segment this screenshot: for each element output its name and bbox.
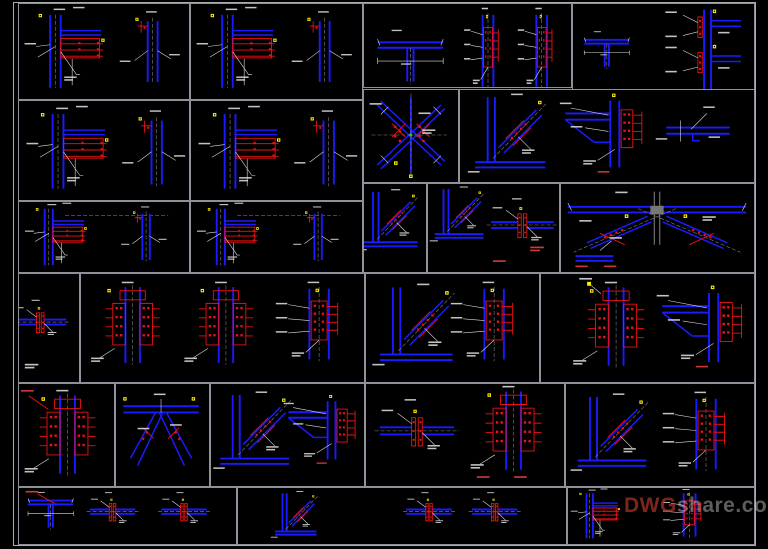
detail-panel-f1 xyxy=(18,487,237,545)
detail-panel-d4 xyxy=(540,273,755,383)
detail-panel-a1 xyxy=(18,3,190,100)
detail-panel-a2 xyxy=(190,3,363,100)
detail-panel-a3 xyxy=(363,3,572,88)
detail-panel-f3 xyxy=(567,487,755,545)
detail-panel-d1 xyxy=(18,273,80,383)
detail-panel-d2 xyxy=(80,273,365,383)
detail-panel-c3 xyxy=(363,183,427,273)
detail-panel-b1 xyxy=(18,100,190,201)
cad-sheet: DWGshare.com xyxy=(0,0,768,549)
detail-panel-e4 xyxy=(365,383,565,487)
detail-panel-e3 xyxy=(210,383,365,487)
detail-panel-e1 xyxy=(18,383,115,487)
detail-panel-c1 xyxy=(18,201,190,273)
detail-panel-c4 xyxy=(427,183,560,273)
detail-panel-f2 xyxy=(237,487,567,545)
detail-panel-b2 xyxy=(190,100,363,201)
detail-panel-b4 xyxy=(459,89,755,183)
detail-panel-a4 xyxy=(572,3,755,90)
detail-panel-e2 xyxy=(115,383,210,487)
detail-panel-e5 xyxy=(565,383,755,487)
detail-panel-b3 xyxy=(363,89,459,183)
detail-panel-c2 xyxy=(190,201,363,273)
detail-panel-d3 xyxy=(365,273,540,383)
detail-panel-c5 xyxy=(560,183,755,273)
